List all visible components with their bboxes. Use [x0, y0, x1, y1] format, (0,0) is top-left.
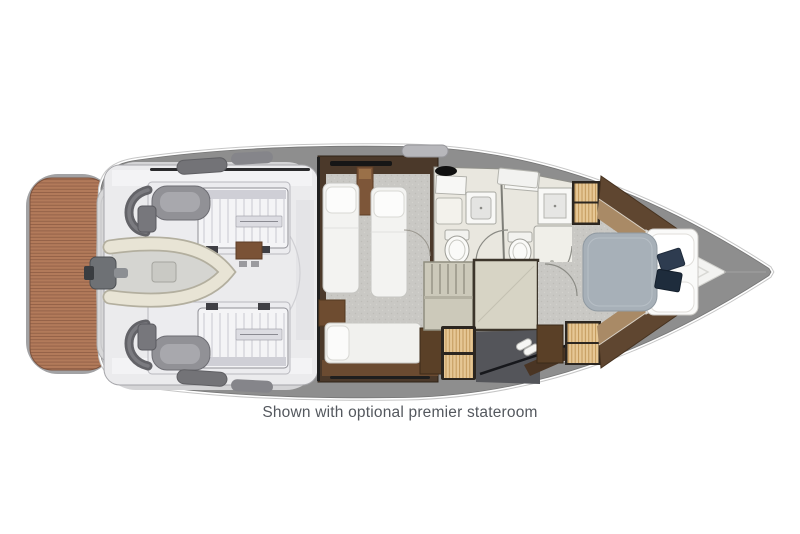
- master-mattress: [583, 233, 657, 311]
- master-head-sink: [538, 188, 572, 224]
- engine-bottom: [129, 302, 290, 374]
- hanging-locker-bottom: [565, 321, 601, 365]
- deck-vent: [435, 166, 457, 176]
- premier-stateroom-box: [474, 260, 538, 330]
- guest-bed-left: [323, 183, 359, 293]
- slatted-cabinet: [424, 262, 473, 330]
- berth-pillow: [327, 326, 349, 360]
- yacht-floorplan-figure: Shown with optional premier stateroom: [0, 0, 800, 534]
- caption: Shown with optional premier stateroom: [0, 402, 800, 426]
- guest-head-sink: [466, 192, 496, 224]
- companionway-stairs: [441, 326, 476, 380]
- entry-wood-cabinet: [537, 325, 563, 363]
- master-bed: [583, 229, 698, 315]
- cabin-window: [330, 161, 392, 166]
- guest-head-toilet: [445, 230, 469, 264]
- deck-hatch: [402, 145, 448, 157]
- tender: [84, 244, 227, 300]
- guest-bed-right: [371, 187, 407, 297]
- hanging-locker-top: [572, 181, 600, 225]
